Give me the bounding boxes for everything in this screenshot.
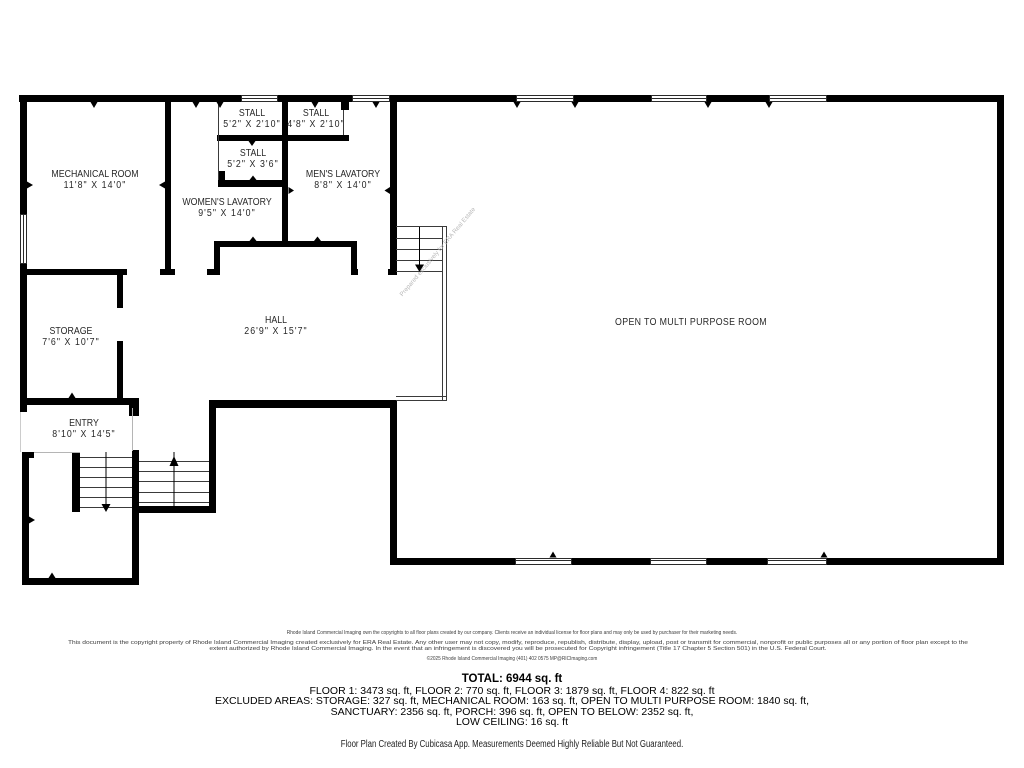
svg-text:Prepared exclusively for ERA R: Prepared exclusively for ERA Real Estate [399, 206, 478, 298]
